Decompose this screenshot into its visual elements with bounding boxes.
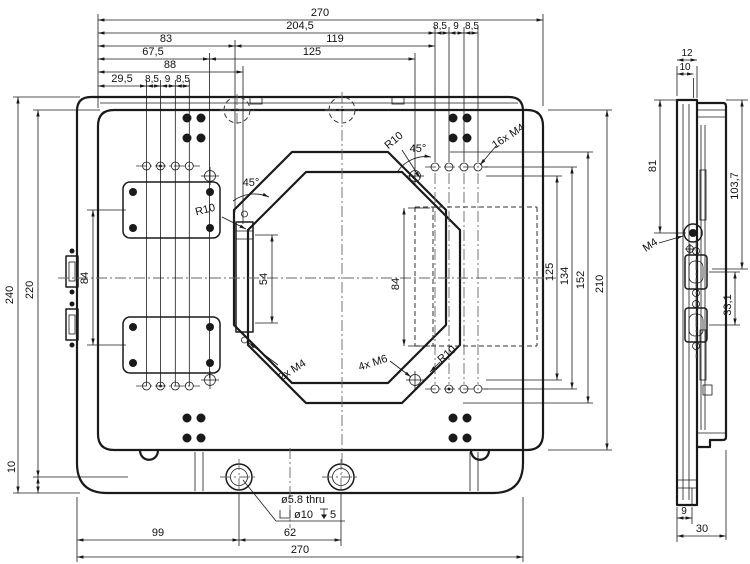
leader-2x-m4: 2x M4 xyxy=(277,357,309,383)
dim-side-30: 30 xyxy=(696,523,708,535)
dim-top-88: 88 xyxy=(164,59,176,71)
technical-drawing-page: 270 204,5 8,5 9 8,5 83 119 67,5 125 88 2… xyxy=(0,0,750,564)
dim-right-210: 210 xyxy=(594,275,606,293)
note-hole-dia: ø5.8 thru xyxy=(281,494,325,506)
note-cbore-dia: ø10 xyxy=(294,509,313,521)
dim-left-240: 240 xyxy=(4,286,16,304)
dim-top-pitch-c: 8,5 xyxy=(465,21,479,32)
dim-top-119: 119 xyxy=(326,33,344,45)
dim-inner-54: 54 xyxy=(258,273,270,285)
m4-hole xyxy=(242,211,248,217)
side-view-body xyxy=(677,100,726,505)
dim-side-12: 12 xyxy=(681,48,693,59)
dim-right-134: 134 xyxy=(559,267,571,285)
m4-hole xyxy=(242,337,248,343)
dim-top-67-5: 67,5 xyxy=(142,46,163,58)
dim-top-125: 125 xyxy=(303,46,321,58)
leader-45-top: 45° xyxy=(410,143,427,155)
left-dimension-chains: 240 220 84 10 xyxy=(4,97,128,493)
top-dimension-chains: 270 204,5 8,5 9 8,5 83 119 67,5 125 88 2… xyxy=(98,7,543,386)
dim-left-220: 220 xyxy=(24,281,36,299)
dim-side-81: 81 xyxy=(647,160,659,172)
leader-4x-m6: 4x M6 xyxy=(357,353,389,374)
leader-16x-m4: 16x M4 xyxy=(490,122,527,152)
dim-top-204-5: 204,5 xyxy=(286,20,314,32)
stage-dimension-drawing: 270 204,5 8,5 9 8,5 83 119 67,5 125 88 2… xyxy=(0,0,750,564)
dim-left-10: 10 xyxy=(6,461,18,473)
leader-r10-bottom: R10 xyxy=(435,344,458,366)
dim-top-pitch-b2: 9 xyxy=(165,74,171,85)
side-view-dimensions: 12 10 81 103,7 33,1 9 30 M4 xyxy=(641,48,748,542)
right-dimension-chains: 125 134 152 210 xyxy=(450,110,612,450)
m4-hole-rows xyxy=(136,162,488,393)
inner-dimensions: 54 84 xyxy=(255,208,430,346)
callout-leaders: 16x M4 R10 45° 45° R10 R10 2x M4 4x M6 xyxy=(194,122,527,384)
dim-side-103-7: 103,7 xyxy=(729,172,741,200)
leader-r10-left: R10 xyxy=(194,202,216,219)
dim-bottom-99: 99 xyxy=(152,527,164,539)
dim-top-83: 83 xyxy=(160,33,172,45)
dim-left-84: 84 xyxy=(79,272,91,284)
front-view-top-plate xyxy=(98,110,543,460)
counterbore-note: ø5.8 thru ø10 5 xyxy=(243,480,345,521)
dim-side-10: 10 xyxy=(679,62,691,73)
dim-right-125: 125 xyxy=(544,263,556,281)
leader-45-left: 45° xyxy=(243,177,260,189)
centerlines xyxy=(58,92,556,528)
dim-side-33-1: 33,1 xyxy=(722,294,734,315)
dim-top-pitch-a2: 8,5 xyxy=(145,74,159,85)
leader-r10-top: R10 xyxy=(382,130,405,152)
m6-hole xyxy=(406,371,424,389)
counterbore-symbol xyxy=(280,510,290,518)
hidden-pocket-outline xyxy=(415,207,537,346)
dim-top-overall: 270 xyxy=(311,7,329,19)
dim-right-152: 152 xyxy=(575,271,587,289)
dim-top-29-5: 29,5 xyxy=(111,73,132,85)
dim-bottom-62: 62 xyxy=(284,527,296,539)
mounting-notch xyxy=(140,450,158,460)
cover-plate xyxy=(123,317,220,373)
dim-top-pitch-c2: 8,5 xyxy=(176,74,190,85)
center-slot-detail xyxy=(236,211,253,343)
note-cbore-depth: 5 xyxy=(330,509,336,521)
front-view-base-plate xyxy=(77,97,523,493)
mounting-notch xyxy=(471,450,489,460)
leader-side-m4: M4 xyxy=(641,236,660,254)
dim-top-pitch-a: 8,5 xyxy=(433,21,447,32)
side-view: 12 10 81 103,7 33,1 9 30 M4 xyxy=(641,48,748,542)
depth-symbol xyxy=(320,509,328,519)
dim-bottom-270: 270 xyxy=(291,544,309,556)
dim-top-pitch-b: 9 xyxy=(453,21,459,32)
dim-side-9: 9 xyxy=(681,506,687,517)
dim-inner-84: 84 xyxy=(390,278,402,290)
